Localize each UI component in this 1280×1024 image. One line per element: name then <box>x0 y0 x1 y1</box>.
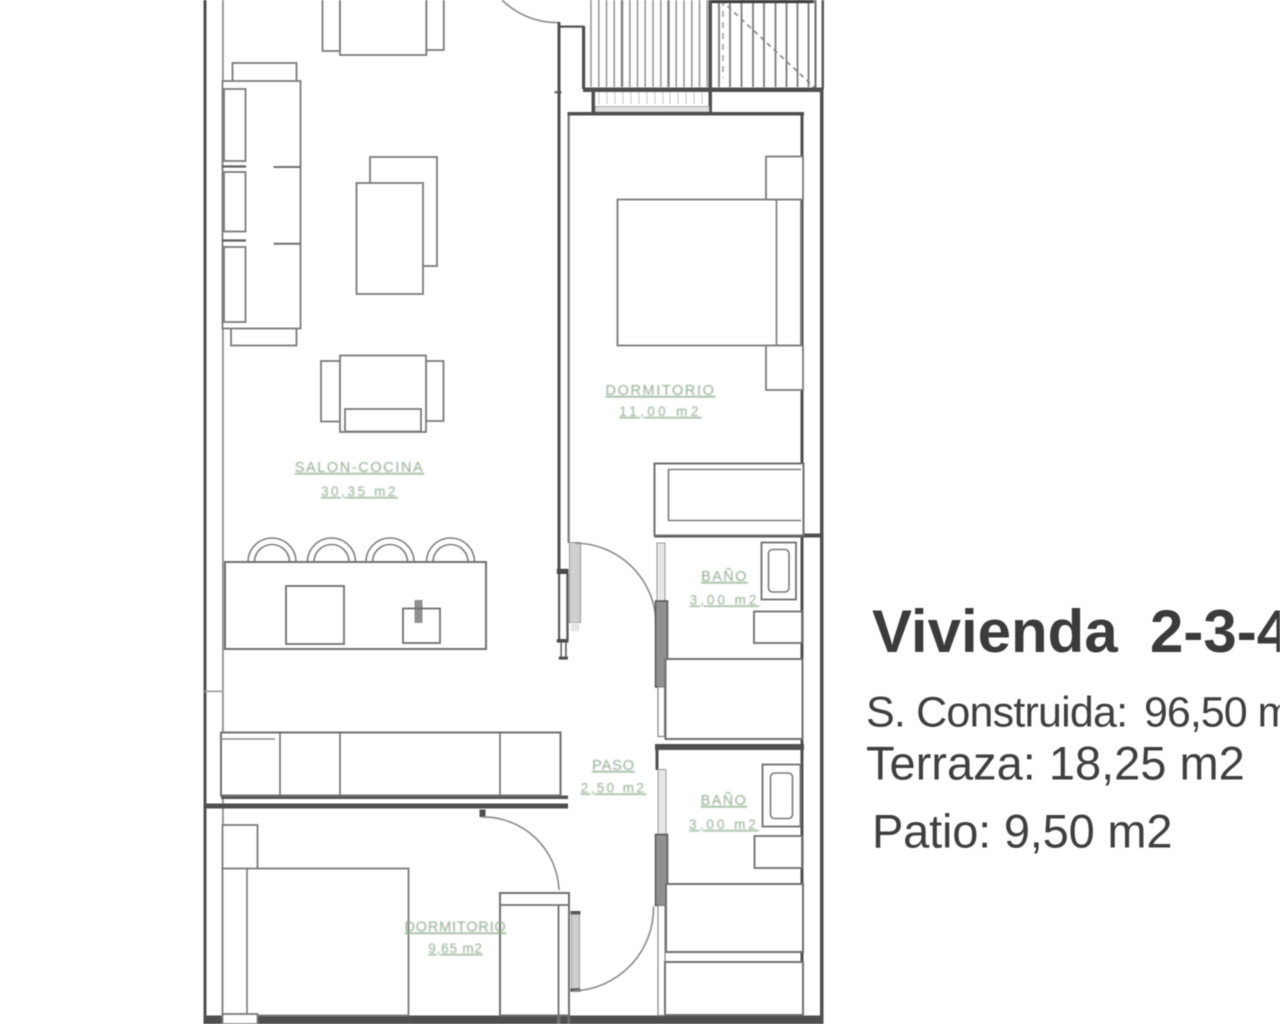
svg-text:S. Construida:: S. Construida: <box>866 689 1127 737</box>
svg-text:2-3-4: 2-3-4 <box>1150 598 1280 665</box>
svg-text:9,65 m2: 9,65 m2 <box>428 941 482 956</box>
svg-text:BAÑO: BAÑO <box>701 792 748 809</box>
svg-text:BAÑO: BAÑO <box>701 568 748 585</box>
svg-text:Patio: 9,50 m2: Patio: 9,50 m2 <box>872 805 1172 858</box>
svg-text:DORMITORIO: DORMITORIO <box>606 383 716 399</box>
svg-text:Terraza: 18,25 m2: Terraza: 18,25 m2 <box>866 737 1245 790</box>
svg-text:11,00 m2: 11,00 m2 <box>619 404 702 419</box>
svg-text:96,50 m2: 96,50 m2 <box>1144 689 1280 737</box>
svg-text:SALON-COCINA: SALON-COCINA <box>295 460 425 476</box>
svg-text:DORMITORIO: DORMITORIO <box>405 920 507 936</box>
svg-text:3,00 m2: 3,00 m2 <box>689 817 759 832</box>
svg-text:PASO: PASO <box>592 758 635 774</box>
svg-text:30,35 m2: 30,35 m2 <box>321 484 398 499</box>
svg-text:3,00 m2: 3,00 m2 <box>690 593 760 608</box>
svg-text:2,50 m2: 2,50 m2 <box>581 781 647 796</box>
svg-text:Vivienda: Vivienda <box>872 598 1118 665</box>
